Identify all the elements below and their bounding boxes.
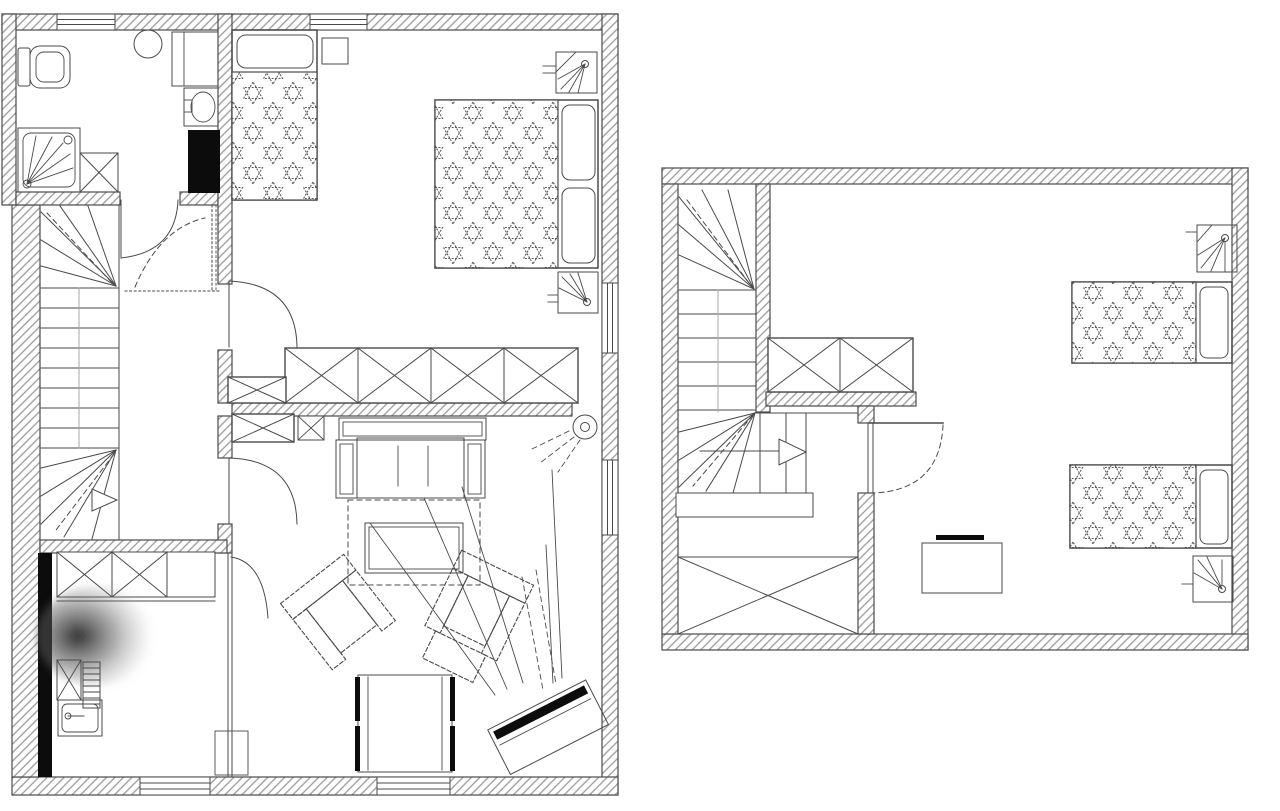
laptop: [936, 535, 984, 540]
double-bed: [435, 100, 598, 268]
single-bed: [232, 30, 317, 200]
ground-staircase: [40, 206, 119, 539]
floor-plan-drawing: [0, 0, 1280, 811]
window: [377, 777, 450, 795]
single-bed-a: [1072, 282, 1232, 363]
pillow: [1200, 287, 1228, 358]
long-wardrobe: [285, 348, 578, 403]
bedroom-door: [229, 281, 297, 347]
desk: [922, 535, 1002, 593]
ceiling-light: [532, 415, 597, 472]
floor-plan-canvas: [0, 0, 1280, 811]
duct-shaft: [188, 130, 220, 193]
living-room: [229, 414, 608, 774]
pillow: [562, 105, 595, 180]
window: [602, 460, 618, 535]
scan-smudge: [36, 586, 156, 686]
handrail-platform: [676, 493, 813, 517]
toilet: [18, 46, 70, 88]
pillow: [562, 188, 595, 263]
washing-machine: [172, 32, 218, 86]
pillow: [237, 35, 313, 68]
upper-bedroom: [922, 225, 1237, 602]
crossed-cabinet-small: [298, 416, 324, 440]
window: [602, 283, 618, 353]
nightstand: [322, 38, 348, 64]
sink-counter: [58, 700, 102, 736]
single-bed-b: [1070, 465, 1232, 548]
window: [310, 14, 367, 30]
wall-lamp: [543, 52, 597, 93]
wall-lamp: [1186, 225, 1237, 272]
ground-floor-plan: [2, 14, 618, 795]
upper-floor-plan: [662, 168, 1248, 650]
upper-wardrobe: [768, 338, 913, 392]
tv-on-stand: [488, 680, 609, 774]
wash-basin: [184, 88, 218, 126]
wall-lamp: [1182, 556, 1233, 602]
living-room-door: [229, 458, 297, 524]
square-seat: [355, 675, 455, 772]
window: [57, 14, 115, 30]
crossed-cabinet: [80, 153, 118, 192]
coffee-table: [365, 523, 463, 573]
sofa: [336, 418, 486, 498]
corner-wardrobe: [228, 377, 286, 403]
tv-screen: [493, 685, 588, 739]
round-sink: [134, 30, 162, 58]
crossed-cabinet: [232, 414, 294, 442]
wall-lamp: [548, 272, 598, 313]
upper-walls: [662, 168, 1248, 650]
stair-direction-arrow: [779, 439, 806, 465]
pillow: [1200, 470, 1228, 544]
large-crossed-closet: [678, 557, 858, 634]
bathroom-door: [121, 200, 178, 258]
window: [140, 777, 210, 795]
tv-viewing-lines: [370, 470, 562, 695]
shower-cabin: [18, 128, 80, 192]
utility-door: [231, 557, 268, 618]
utility-room: [36, 552, 268, 777]
upper-door: [870, 423, 943, 493]
